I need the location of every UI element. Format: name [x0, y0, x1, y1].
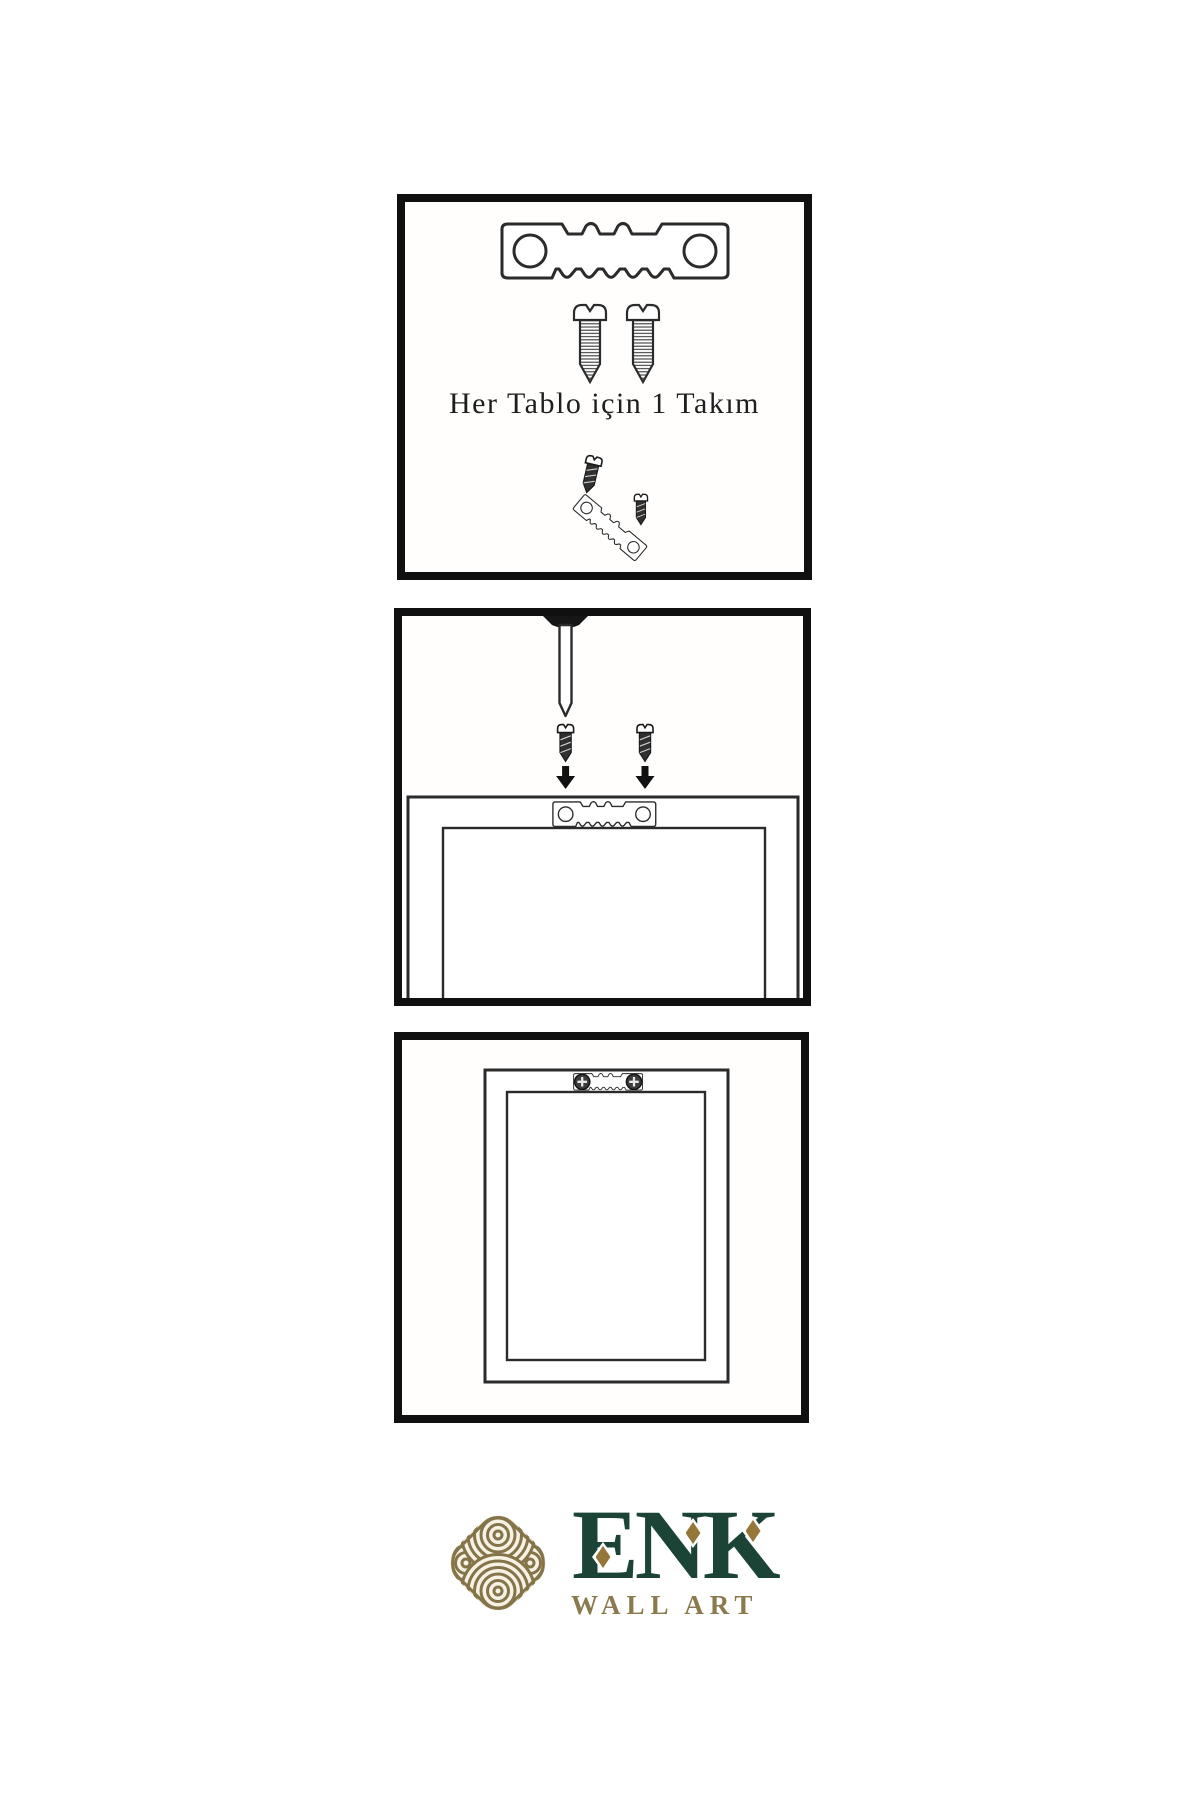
hung-frame-illustration	[402, 1040, 801, 1415]
screw-icon	[558, 725, 574, 762]
screw-icon	[574, 305, 606, 382]
frame-inner-outline	[507, 1092, 705, 1360]
down-arrow-icon	[556, 766, 575, 789]
screw-small-icon	[634, 494, 647, 524]
panel-mount-hanger	[394, 608, 811, 1006]
brand-subtitle: WALL ART	[571, 1592, 758, 1619]
phillips-screw-head-icon	[626, 1074, 641, 1089]
mounting-illustration	[402, 616, 803, 998]
screw-icon	[627, 305, 659, 382]
down-arrow-icon	[636, 766, 655, 789]
instruction-sheet: Her Tablo için 1 Takım	[0, 0, 1200, 1800]
sawtooth-hanger-icon	[502, 224, 728, 279]
kit-caption: Her Tablo için 1 Takım	[405, 387, 804, 421]
panel-hardware-kit: Her Tablo için 1 Takım	[397, 194, 812, 580]
phillips-screw-head-icon	[575, 1074, 590, 1089]
screw-icon	[637, 725, 653, 762]
brand-logo: ENK WALL ART	[440, 1492, 790, 1662]
knot-logo-icon	[440, 1497, 556, 1629]
wall-nail-icon	[543, 616, 588, 716]
screw-angled-icon	[579, 455, 603, 494]
frame-back-inner	[443, 828, 765, 998]
panel-frame-hung	[394, 1032, 809, 1423]
sawtooth-hanger-on-frame-icon	[553, 802, 656, 827]
